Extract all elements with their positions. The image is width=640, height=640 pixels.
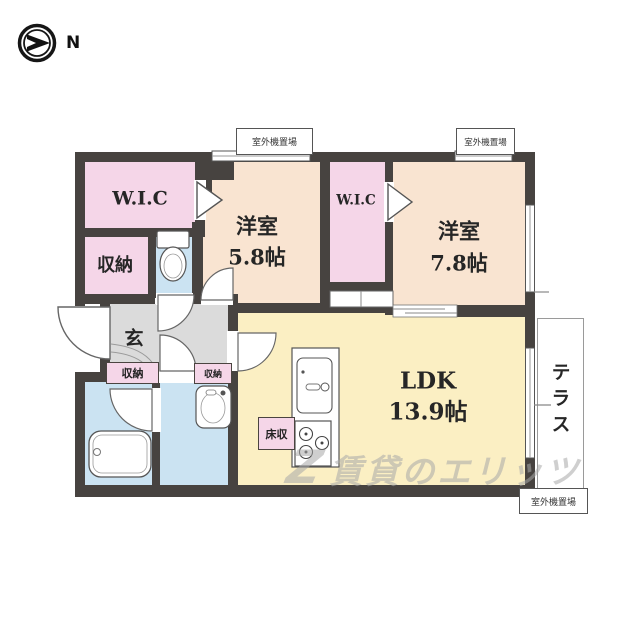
- wall-segment: [75, 152, 85, 306]
- floor-storage-label: 床収: [266, 426, 288, 442]
- compass-icon: [16, 22, 58, 64]
- floor-plan: W.I.C 収納 洋室 5.8帖 W.I.C 洋室 7.8帖 LDK 13.9帖…: [0, 0, 640, 640]
- outdoor-unit-label: 室外機置場: [252, 135, 297, 148]
- room-wic-center: [330, 162, 385, 282]
- label-bedroom-small-name: 洋室: [236, 216, 278, 237]
- wall-segment: [320, 162, 330, 313]
- hall-storage-box: 収納: [106, 362, 159, 384]
- wall-segment: [75, 380, 85, 497]
- wall-segment: [228, 370, 238, 487]
- room-washroom: [158, 382, 228, 485]
- wall-segment: [331, 417, 339, 467]
- outdoor-unit-box-top-left: 室外機置場: [236, 128, 313, 155]
- wall-segment: [193, 294, 202, 304]
- label-bedroom-large-size: 7.8帖: [430, 253, 488, 274]
- wall-segment: [330, 282, 393, 291]
- wall-segment: [457, 305, 535, 317]
- wall-segment: [152, 430, 160, 487]
- washroom-storage-box: 収納: [194, 363, 232, 384]
- outdoor-unit-box-bottom: 室外機置場: [519, 488, 588, 514]
- wall-segment: [385, 220, 393, 315]
- outdoor-unit-label: 室外機置場: [464, 136, 507, 148]
- label-wic-center: W.I.C: [336, 194, 376, 208]
- floor-storage-box: 床収: [258, 417, 295, 450]
- north-label: N: [66, 33, 80, 53]
- wall-segment: [228, 303, 330, 313]
- washroom-storage-label: 収納: [204, 367, 222, 380]
- label-wic-left: W.I.C: [112, 190, 168, 209]
- label-entrance: 玄: [124, 330, 143, 349]
- label-bedroom-small-size: 5.8帖: [228, 247, 286, 268]
- room-bathroom: [85, 382, 152, 485]
- outdoor-unit-box-top-right: 室外機置場: [456, 128, 515, 155]
- floor-plan-page: { "compass": { "north_label": "N" }, "ro…: [0, 0, 640, 640]
- wall-segment: [148, 228, 156, 298]
- wall-pillar: [196, 180, 212, 192]
- wall-segment: [100, 294, 110, 308]
- wall-pillar: [196, 162, 234, 180]
- hall-storage-label: 収納: [122, 365, 144, 381]
- label-ldk-size: 13.9帖: [388, 401, 467, 424]
- wall-segment: [330, 306, 393, 313]
- entrance-door-arc: [58, 307, 110, 359]
- wall-segment: [385, 162, 393, 184]
- room-ldk: [232, 313, 525, 485]
- outdoor-unit-label: 室外機置場: [531, 495, 576, 508]
- label-ldk-name: LDK: [400, 370, 456, 393]
- compass: [16, 22, 58, 64]
- wall-segment: [192, 222, 203, 298]
- closet-sliding-door: [330, 291, 393, 307]
- label-bedroom-large-name: 洋室: [438, 221, 480, 242]
- wall-segment: [228, 294, 238, 332]
- wall-segment: [75, 485, 535, 497]
- label-storage-left: 収納: [97, 257, 133, 275]
- label-terrace: テラス: [550, 362, 569, 440]
- wall-segment: [525, 152, 535, 497]
- wall-segment: [75, 294, 155, 304]
- wall-segment: [85, 228, 203, 237]
